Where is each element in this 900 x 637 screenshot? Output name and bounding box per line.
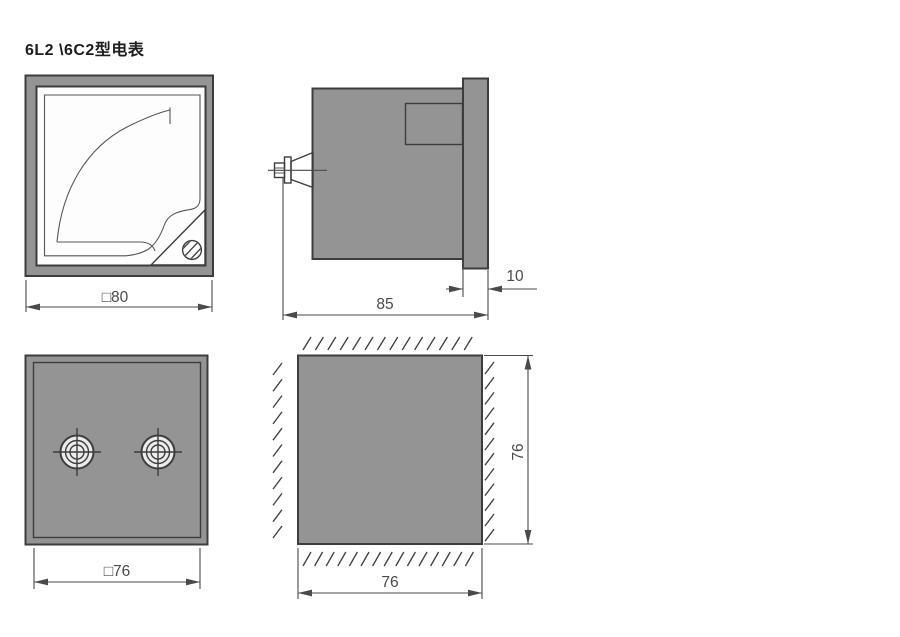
meter-window xyxy=(37,87,206,266)
rear-view: □76 xyxy=(26,356,208,590)
rear-cover xyxy=(26,356,208,545)
side-view: 10 85 xyxy=(268,79,537,321)
dimension-rear-width: □76 xyxy=(34,548,200,589)
dimension-flange: 10 xyxy=(446,261,537,320)
mounting-flange xyxy=(463,79,488,269)
meter-body xyxy=(313,89,464,260)
drawing-canvas: □80 10 xyxy=(0,0,900,637)
hatch-top xyxy=(303,337,472,350)
panel-cutout-view: 76 76 xyxy=(273,337,533,599)
cutout-height-label: 76 xyxy=(510,443,527,460)
cutout-square xyxy=(298,356,482,545)
dimension-cutout-height: 76 xyxy=(484,356,533,545)
rear-width-label: □76 xyxy=(104,563,131,580)
flange-thickness-label: 10 xyxy=(506,268,524,285)
dimension-front-width: □80 xyxy=(26,280,212,312)
front-view: □80 xyxy=(26,76,214,313)
front-width-label: □80 xyxy=(102,289,129,306)
depth-label: 85 xyxy=(376,296,393,313)
hatch-bottom xyxy=(303,552,473,566)
hatch-left xyxy=(273,363,282,538)
technical-drawing-page: 6L2 \6C2型电表 □80 xyxy=(0,0,900,637)
hatch-right xyxy=(485,362,494,541)
cutout-width-label: 76 xyxy=(381,574,398,591)
